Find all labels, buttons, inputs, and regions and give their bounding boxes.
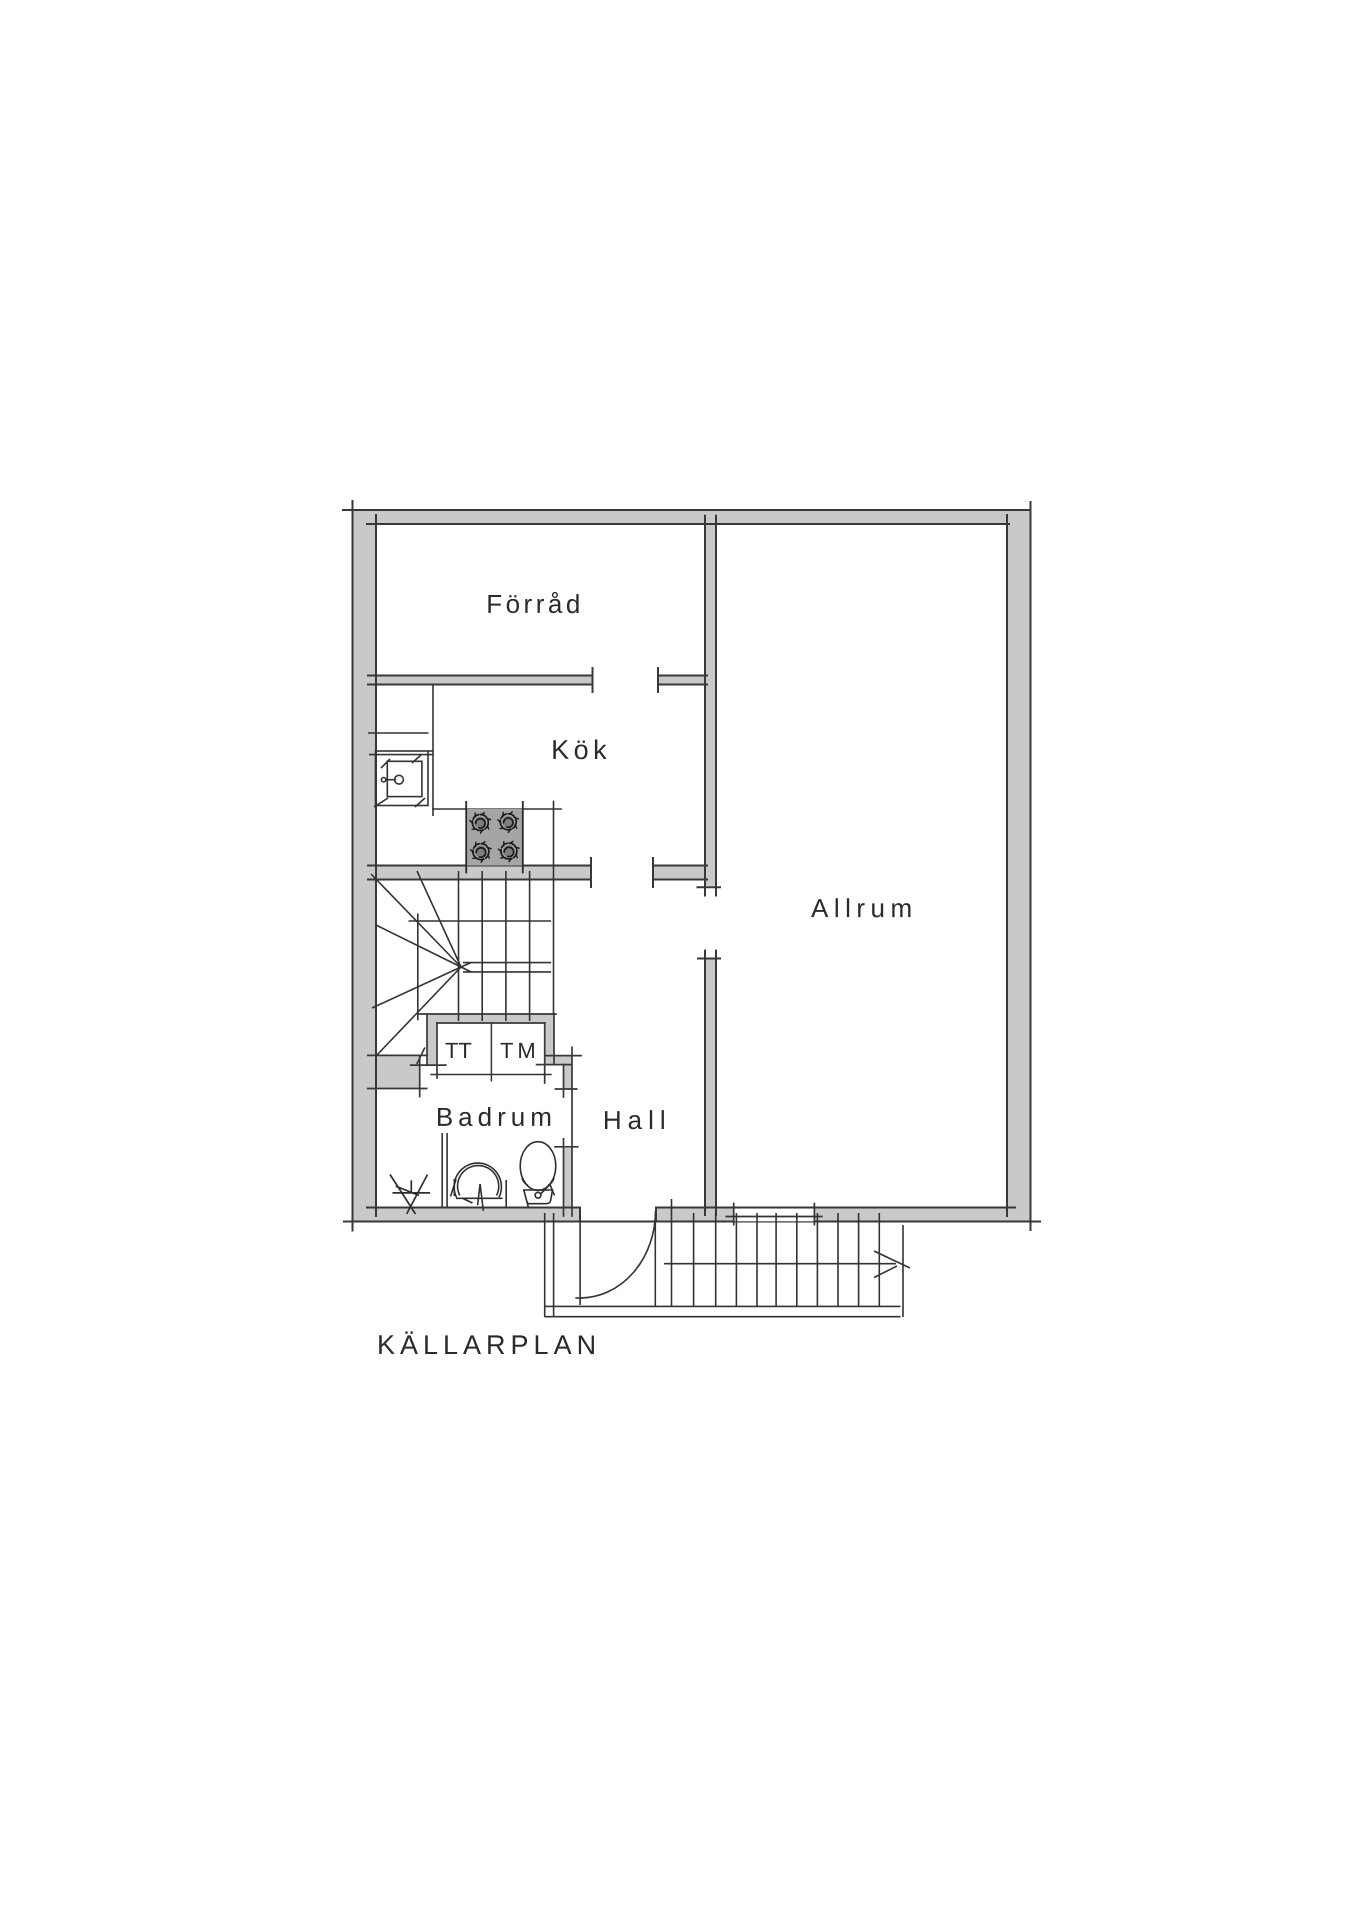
svg-text:Badrum: Badrum	[436, 1102, 557, 1132]
svg-text:Kök: Kök	[551, 735, 611, 765]
svg-text:KÄLLARPLAN: KÄLLARPLAN	[377, 1330, 601, 1360]
svg-text:Förråd: Förråd	[486, 589, 584, 619]
svg-text:Hall: Hall	[603, 1105, 672, 1135]
svg-text:TT: TT	[445, 1038, 472, 1063]
svg-text:TM: TM	[500, 1038, 540, 1063]
svg-text:Allrum: Allrum	[811, 893, 918, 923]
